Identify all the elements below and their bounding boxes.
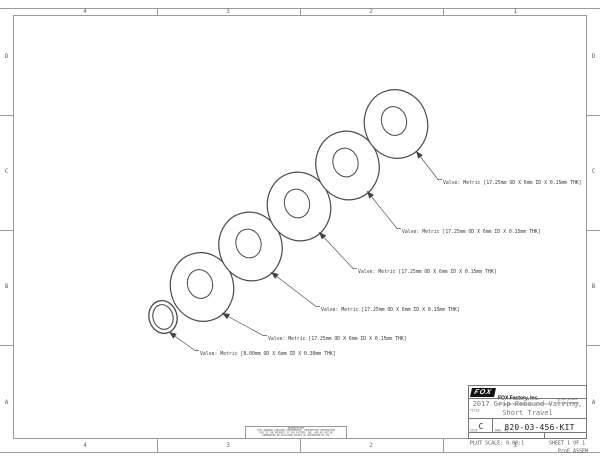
callout-label: Valve: Metric [17.25mm OD X 6mm ID X 0.1… xyxy=(358,264,600,274)
leader-line xyxy=(319,232,357,269)
fox-logo: FOX xyxy=(470,388,496,397)
leader-line xyxy=(271,272,320,307)
drawing-title: 2017 Grip Rebound Valving, Short Travel xyxy=(469,400,586,417)
callout-label: Valve: Metric [17.25mm OD X 6mm ID X 0.1… xyxy=(402,224,600,234)
sheet-size: C xyxy=(471,422,491,431)
leader-line xyxy=(416,151,442,180)
callout-label: Valve: Metric [17.25mm OD X 6mm ID X 0.1… xyxy=(321,302,598,312)
drawing-sheet: 4 3 2 1 4 3 2 1 D C B A D C B A xyxy=(0,0,600,463)
drawing-number: 820-03-456-KIT xyxy=(493,423,586,432)
title-block: FOX FOX Factory, Inc. 130 Hangar Way, Wa… xyxy=(468,385,587,439)
footer-note: ProE ASSEM xyxy=(540,441,588,447)
callout-label: Valve: Metric [8.00mm OD X 6mm ID X 0.30… xyxy=(200,346,471,356)
proprietary-note: PROPRIETARY THIS DRAWING CONTAINS CONFID… xyxy=(245,426,347,439)
leader-line xyxy=(169,332,199,351)
proprietary-line: REPRODUCED OR DISCLOSED EXCEPT AS AUTHOR… xyxy=(246,434,346,436)
callout-label: Valve: Metric [17.25mm OD X 6mm ID X 0.1… xyxy=(443,175,600,185)
leader-line xyxy=(222,313,267,336)
callout-label: Valve: Metric [17.25mm OD X 6mm ID X 0.1… xyxy=(268,331,545,341)
leader-line xyxy=(367,191,401,229)
